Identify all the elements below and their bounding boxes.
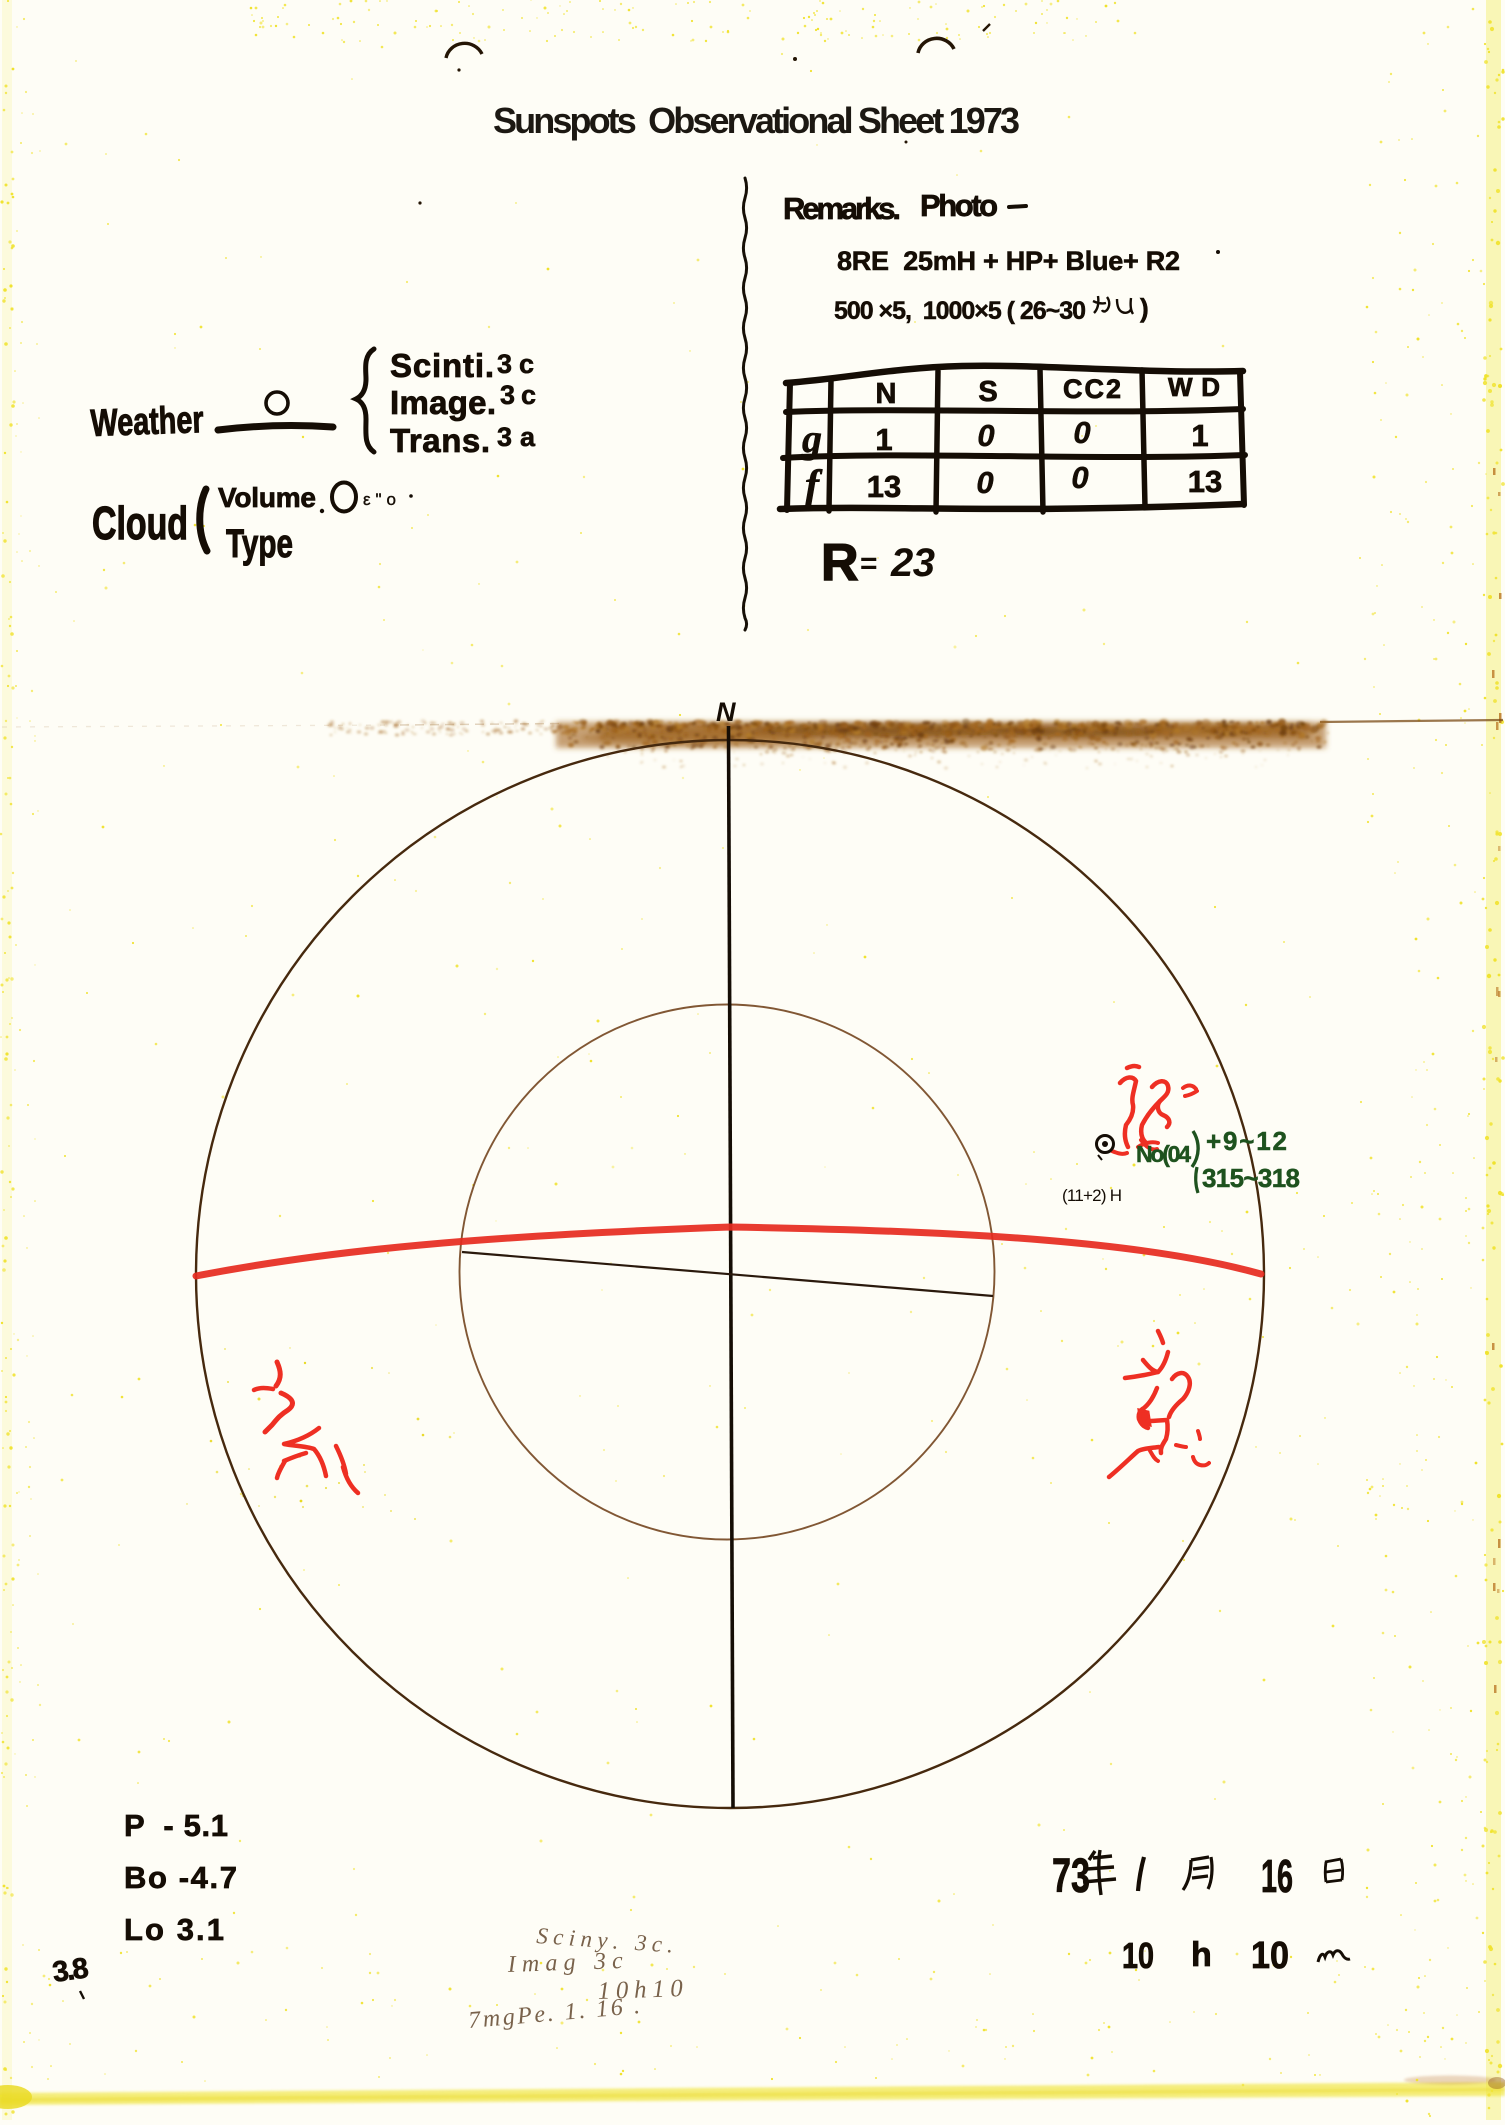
svg-text:R: R	[821, 534, 859, 592]
svg-text:0: 0	[1073, 415, 1090, 450]
svg-text:0: 0	[977, 418, 994, 453]
svg-text:1: 1	[1191, 418, 1208, 453]
svg-text:Type: Type	[226, 522, 293, 566]
svg-text:13: 13	[867, 469, 901, 504]
svg-text:S: S	[978, 376, 997, 408]
svg-text:0: 0	[1071, 460, 1088, 495]
svg-text:=: =	[860, 547, 878, 580]
svg-text:Lo 3.1: Lo 3.1	[124, 1912, 224, 1947]
svg-text:(11+2) H: (11+2) H	[1062, 1186, 1122, 1205]
svg-text:P - 5.1: P - 5.1	[124, 1808, 228, 1843]
svg-text:h: h	[1191, 1936, 1212, 1974]
svg-text:Photo: Photo	[920, 188, 998, 223]
svg-text:Bo -4.7: Bo -4.7	[124, 1860, 237, 1895]
svg-text:): )	[1140, 293, 1149, 323]
svg-text:N: N	[716, 697, 736, 727]
svg-text:Volume: Volume	[218, 482, 316, 513]
svg-text:8RE 25mH + HP+ Blue+ R2: 8RE 25mH + HP+ Blue+ R2	[837, 246, 1180, 276]
svg-text:ε"o: ε"o	[363, 490, 396, 509]
svg-text:N: N	[876, 378, 897, 410]
svg-text:g: g	[801, 416, 822, 461]
svg-text:0: 0	[976, 465, 993, 500]
svg-text:3.8: 3.8	[51, 1952, 91, 1989]
svg-text:+9~12: +9~12	[1206, 1126, 1287, 1156]
svg-text:Trans.: Trans.	[390, 422, 490, 459]
svg-text:13: 13	[1188, 464, 1222, 499]
svg-text:10: 10	[1122, 1935, 1154, 1976]
svg-text:Scinti.: Scinti.	[390, 347, 494, 384]
svg-text:315~318: 315~318	[1202, 1163, 1300, 1193]
svg-text:CC2: CC2	[1063, 374, 1121, 404]
svg-text:Image.: Image.	[390, 384, 496, 421]
svg-text:16: 16	[1261, 1850, 1293, 1902]
svg-text:Sunspots Observational Sheet: Sunspots Observational Sheet 1973	[493, 100, 1020, 141]
svg-text:Cloud: Cloud	[92, 497, 188, 549]
svg-text:Weather: Weather	[90, 399, 205, 445]
svg-text:23: 23	[890, 541, 935, 585]
svg-text:73: 73	[1052, 1850, 1090, 1903]
svg-text:10: 10	[1251, 1935, 1289, 1977]
svg-text:Remarks.: Remarks.	[783, 191, 901, 226]
svg-text:500 ×5, 1000×5 ( 26~30: 500 ×5, 1000×5 ( 26~30	[834, 297, 1086, 325]
svg-text:1: 1	[875, 422, 892, 457]
svg-text:No(04: No(04	[1136, 1141, 1191, 1167]
